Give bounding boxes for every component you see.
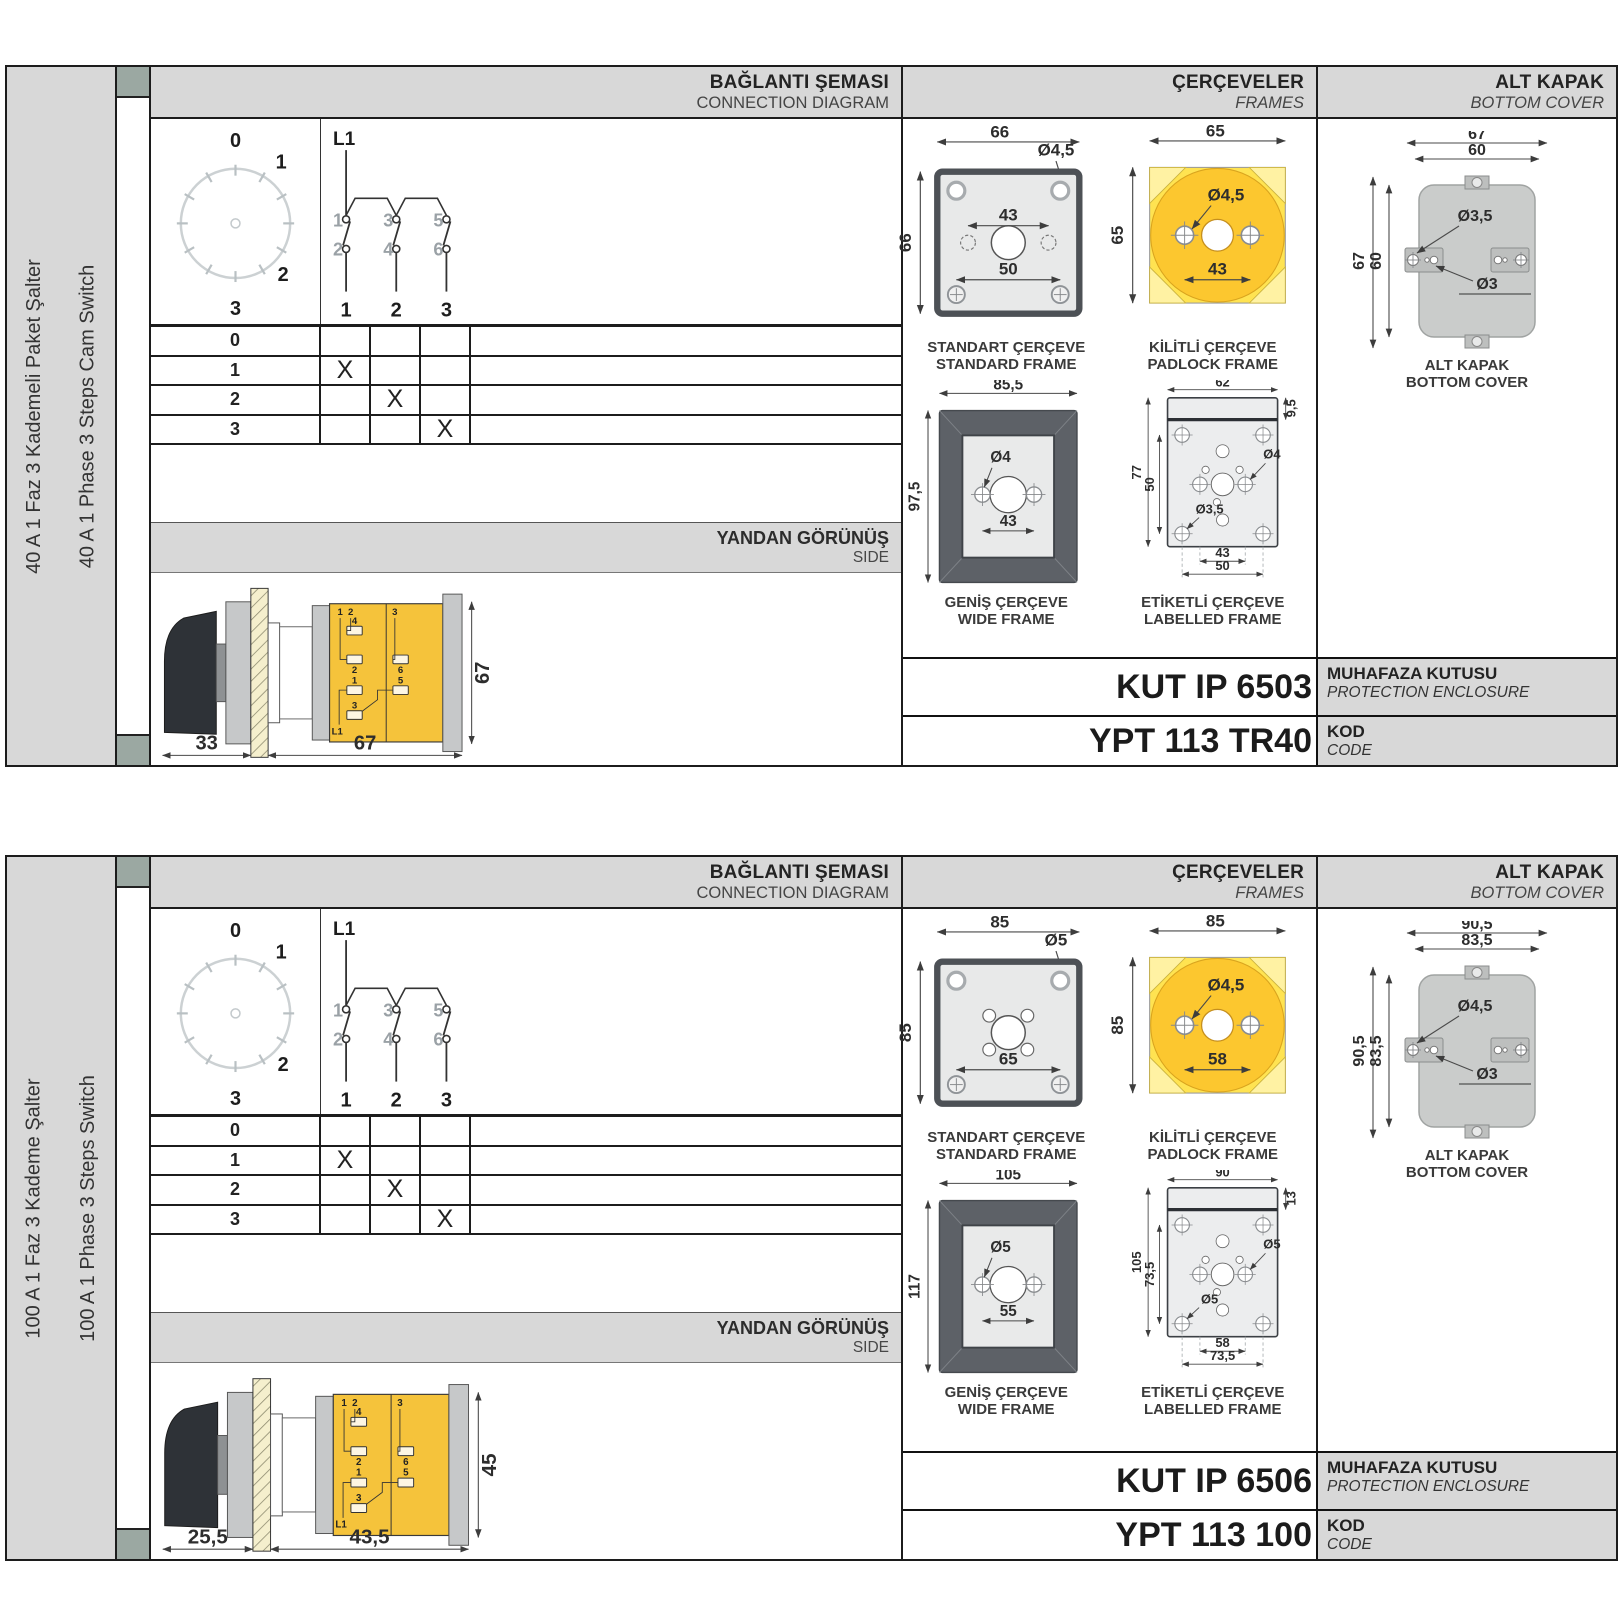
wire-label: 1: [337, 607, 343, 618]
contact-3: 3: [383, 1000, 393, 1020]
filler-cell: [471, 1117, 901, 1145]
contact-1: 1: [333, 210, 343, 230]
section-body: 0 1 2 3 L1: [151, 119, 1616, 765]
dim-hole-small: Ø5: [1201, 1291, 1218, 1306]
row-label: 1: [151, 357, 321, 385]
cover-caption-tr: ALT KAPAK: [1406, 357, 1528, 374]
output-3: 3: [441, 1090, 452, 1112]
dim-bottom: 65: [998, 1049, 1017, 1068]
frames-column: 66 Ø4,5 66: [903, 119, 1318, 657]
mark-cell: [371, 357, 421, 385]
terminal-label: 4: [352, 616, 358, 627]
column-headers: BAĞLANTI ŞEMASI CONNECTION DIAGRAM ÇERÇE…: [151, 67, 1616, 119]
side-view-svg: 1 2 3 4 2 1 3 6 5 L1 45: [151, 1363, 901, 1559]
product-name-tr-box: 100 A 1 Faz 3 Kademe Şalter: [7, 857, 61, 1559]
filler-cell: [471, 327, 901, 355]
dial-pos-0: 0: [230, 920, 241, 942]
dim-hole-big: Ø4: [1263, 446, 1281, 461]
mark-cell: [321, 1117, 371, 1145]
side-view-header: YANDAN GÖRÜNÜŞ SIDE: [151, 523, 901, 573]
contact-2: 2: [333, 239, 343, 259]
enclosure-row: KUT IP 6503 MUHAFAZA KUTUSU PROTECTION E…: [903, 657, 1616, 715]
connection-column: 0 1 2 3 L1: [151, 119, 903, 765]
enclosure-label-en: PROTECTION ENCLOSURE: [1327, 684, 1616, 703]
gutter-square-bottom: [117, 734, 149, 765]
mounting-collar: [226, 602, 251, 744]
diagram-row: 0 1 2 3 L1: [151, 119, 901, 327]
switch-table-row: 0: [151, 1117, 901, 1147]
output-lines: [346, 252, 446, 291]
dim-h1: 67: [1351, 252, 1368, 270]
bottom-cover-svg: 90,5 83,5 90,5 83,5: [1333, 921, 1601, 1145]
gutter-square-bottom: [117, 1528, 149, 1559]
frames-cover-area: 66 Ø4,5 66: [903, 119, 1616, 765]
dial-pos-3: 3: [230, 298, 241, 320]
code-label-tr: KOD: [1327, 722, 1616, 742]
frame-caption-en: PADLOCK FRAME: [1147, 1146, 1278, 1163]
labelled-frame-figure: 62 9,5 77 50: [1110, 374, 1317, 629]
product-code: YPT 113 100: [903, 1511, 1316, 1559]
dim-inner: 50: [1142, 477, 1157, 491]
contact-3: 3: [383, 210, 393, 230]
row-label: 0: [151, 1117, 321, 1145]
header-cover-en: BOTTOM COVER: [1470, 94, 1604, 113]
frame-caption-en: STANDARD FRAME: [927, 1146, 1085, 1163]
wire-label: 3: [392, 607, 397, 618]
dial-pos-3: 3: [230, 1088, 241, 1110]
dim-mid: 43: [998, 205, 1017, 224]
labelled-frame-svg: 90 13 105 73,5: [1119, 1170, 1307, 1382]
end-cap: [443, 594, 462, 751]
row-label: 3: [151, 416, 321, 444]
dim-width: 65: [1206, 125, 1225, 141]
dim-height: 65: [1108, 226, 1127, 245]
output-3: 3: [441, 300, 452, 322]
switch-table-row: 3X: [151, 416, 901, 446]
output-1: 1: [341, 300, 352, 322]
enclosure-label-tr: MUHAFAZA KUTUSU: [1327, 664, 1616, 684]
frame-caption-en: WIDE FRAME: [945, 1401, 1068, 1418]
dim-width: 105: [996, 1170, 1022, 1184]
code-label-tr: KOD: [1327, 1516, 1616, 1536]
bottom-cover-figure: 90,5 83,5 90,5 83,5: [1318, 915, 1616, 1182]
switch-table-row: 1X: [151, 357, 901, 387]
dial-pos-1: 1: [276, 942, 287, 964]
dim-height: 67: [472, 662, 494, 684]
dim-hole-2: Ø3: [1476, 1066, 1497, 1083]
dim-body: 43,5: [350, 1525, 390, 1548]
phase-wire-label: L1: [332, 726, 344, 737]
dim-body: 67: [354, 733, 376, 755]
header-connection-tr: BAĞLANTI ŞEMASI: [710, 862, 889, 884]
terminal-label: 4: [356, 1407, 362, 1418]
code-row: YPT 113 TR40 KOD CODE: [903, 715, 1616, 765]
dim-height: 117: [907, 1274, 923, 1299]
dim-bottom: 50: [998, 259, 1017, 278]
dim-width: 62: [1215, 380, 1229, 389]
cover-caption-tr: ALT KAPAK: [1406, 1147, 1528, 1164]
product-name-en-box: 100 A 1 Phase 3 Steps Switch: [61, 857, 115, 1559]
product-name-tr: 100 A 1 Faz 3 Kademe Şalter: [23, 1078, 46, 1338]
terminal-label: 5: [403, 1468, 409, 1479]
column-headers: BAĞLANTI ŞEMASI CONNECTION DIAGRAM ÇERÇE…: [151, 857, 1616, 909]
product-name-en: 100 A 1 Phase 3 Steps Switch: [77, 1075, 100, 1342]
header-connection-en: CONNECTION DIAGRAM: [696, 884, 889, 903]
filler-cell: [471, 357, 901, 385]
mark-cell: [421, 357, 471, 385]
output-2: 2: [391, 1090, 402, 1112]
header-frames-en: FRAMES: [1235, 94, 1304, 113]
header-cover-tr: ALT KAPAK: [1495, 862, 1604, 884]
header-connection-en: CONNECTION DIAGRAM: [696, 94, 889, 113]
mark-cell: [421, 1176, 471, 1204]
padlock-frame-figure: 85 85 Ø4,5: [1110, 909, 1317, 1164]
frame-caption-tr: KİLİTLİ ÇERÇEVE: [1147, 1129, 1278, 1146]
cover-caption-en: BOTTOM COVER: [1406, 374, 1528, 391]
front-housing: [282, 1418, 315, 1512]
dim-hole-1: Ø4,5: [1458, 998, 1493, 1015]
dial-drawing: 0 1 2 3: [151, 119, 320, 323]
product-name-tr-box: 40 A 1 Faz 3 Kademeli Paket Şalter: [7, 67, 61, 765]
standard-frame-figure: 66 Ø4,5 66: [903, 119, 1110, 374]
side-label-strip: 40 A 1 Faz 3 Kademeli Paket Şalter 40 A …: [7, 67, 117, 765]
side-view-header: YANDAN GÖRÜNÜŞ SIDE: [151, 1313, 901, 1363]
dim-bottom-2: 73,5: [1210, 1348, 1235, 1363]
section-main: BAĞLANTI ŞEMASI CONNECTION DIAGRAM ÇERÇE…: [151, 857, 1616, 1559]
mark-cell: X: [321, 1147, 371, 1175]
diagram-row: 0 1 2 3 L1: [151, 909, 901, 1117]
enclosure-row: KUT IP 6506 MUHAFAZA KUTUSU PROTECTION E…: [903, 1451, 1616, 1509]
terminal-label: 6: [398, 665, 403, 676]
bottom-cover-svg: 67 60 67 60: [1333, 131, 1601, 355]
code-label-en: CODE: [1327, 1536, 1616, 1555]
binding-gutter: [117, 67, 151, 765]
mark-cell: X: [371, 386, 421, 414]
phase-label: L1: [333, 129, 356, 150]
mark-cell: [421, 386, 471, 414]
switch-handle: [164, 611, 216, 734]
dim-height: 66: [897, 233, 915, 252]
mark-cell: X: [421, 416, 471, 444]
dim-height: 97,5: [907, 481, 923, 511]
header-frames-tr: ÇERÇEVELER: [1172, 862, 1304, 884]
terminal-label: 2: [356, 1457, 362, 1468]
phase-wire-label: L1: [335, 1520, 347, 1531]
output-lines: [346, 1042, 446, 1081]
dim-mid: 55: [1000, 1303, 1017, 1320]
code-row: YPT 113 100 KOD CODE: [903, 1509, 1616, 1559]
switch-position-dial: 0 1 2 3: [151, 119, 321, 324]
standard-frame-svg: 85 Ø5 85: [897, 915, 1116, 1127]
side-view-drawing: 1 2 3 4 2 1 3 6 5 L1 45: [151, 1363, 901, 1559]
header-cover-tr: ALT KAPAK: [1495, 72, 1604, 94]
mark-cell: [321, 1176, 371, 1204]
dim-hole-small: Ø3,5: [1195, 501, 1223, 516]
mark-cell: [321, 327, 371, 355]
frames-column: 85 Ø5 85: [903, 909, 1318, 1451]
section-body: 0 1 2 3 L1: [151, 909, 1616, 1559]
header-cover-en: BOTTOM COVER: [1470, 884, 1604, 903]
labelled-frame-svg: 62 9,5 77 50: [1119, 380, 1307, 592]
enclosure-label-en: PROTECTION ENCLOSURE: [1327, 1478, 1616, 1497]
contact-2: 2: [333, 1029, 343, 1049]
dim-width: 85,5: [994, 380, 1024, 394]
mounting-collar: [227, 1392, 252, 1537]
side-header-en: SIDE: [853, 549, 889, 567]
dim-width: 90: [1215, 1170, 1229, 1179]
product-name-en: 40 A 1 Phase 3 Steps Cam Switch: [77, 264, 100, 568]
wire-label: 1: [341, 1398, 347, 1409]
mark-cell: [421, 327, 471, 355]
contact-1: 1: [333, 1000, 343, 1020]
dim-hole-2: Ø3: [1476, 276, 1497, 293]
mark-cell: [321, 386, 371, 414]
product-section-40a: 40 A 1 Faz 3 Kademeli Paket Şalter 40 A …: [5, 65, 1618, 767]
gutter-square-top: [117, 67, 149, 98]
contact-6: 6: [433, 1029, 443, 1049]
switch-handle: [165, 1402, 218, 1527]
mark-cell: [371, 1117, 421, 1145]
terminal-label: 2: [352, 665, 357, 676]
front-housing: [280, 627, 313, 719]
dim-hole: Ø4: [991, 449, 1012, 466]
header-connection-tr: BAĞLANTI ŞEMASI: [710, 72, 889, 94]
frame-caption-tr: GENİŞ ÇERÇEVE: [945, 1384, 1068, 1401]
panel-hatch: [253, 1379, 271, 1551]
dim-height: 85: [897, 1023, 915, 1042]
dim-hole: Ø5: [1044, 931, 1067, 950]
dim-hole: Ø4,5: [1208, 185, 1245, 204]
header-connection-diagram: BAĞLANTI ŞEMASI CONNECTION DIAGRAM: [151, 857, 903, 907]
spacer-row: [151, 445, 901, 523]
mark-cell: [371, 327, 421, 355]
frames-cover-area: 85 Ø5 85: [903, 909, 1616, 1559]
dim-mid: 43: [1208, 259, 1227, 278]
frame-caption-en: WIDE FRAME: [945, 611, 1068, 628]
mark-cell: [371, 1147, 421, 1175]
filler-cell: [471, 1147, 901, 1175]
circuit-drawing: L1: [321, 909, 901, 1115]
wide-frame-figure: 105 117 Ø5: [903, 1164, 1110, 1419]
circuit-drawing: L1: [321, 119, 901, 325]
row-label: 3: [151, 1206, 321, 1234]
mark-cell: [421, 1147, 471, 1175]
connection-circuit: L1: [321, 909, 901, 1114]
mark-cell: [321, 1206, 371, 1234]
cover-column: 90,5 83,5 90,5 83,5: [1318, 909, 1616, 1451]
enclosure-code: KUT IP 6503: [903, 659, 1316, 715]
mark-cell: X: [371, 1176, 421, 1204]
mark-cell: [421, 1117, 471, 1145]
enclosure-label: MUHAFAZA KUTUSU PROTECTION ENCLOSURE: [1316, 1453, 1616, 1509]
mark-cell: [371, 1206, 421, 1234]
phase-label: L1: [333, 919, 356, 940]
terminal-label: 3: [352, 700, 357, 711]
panel-hatch: [251, 588, 268, 757]
header-bottom-cover: ALT KAPAK BOTTOM COVER: [1318, 857, 1616, 907]
dim-width: 66: [990, 125, 1009, 142]
row-label: 1: [151, 1147, 321, 1175]
dim-w2: 60: [1468, 142, 1486, 159]
switch-table-row: 2X: [151, 1176, 901, 1206]
contact-5: 5: [433, 210, 443, 230]
standard-frame-svg: 66 Ø4,5 66: [897, 125, 1116, 337]
wide-frame-svg: 85,5 97,5 Ø4: [907, 380, 1105, 592]
header-frames: ÇERÇEVELER FRAMES: [903, 857, 1318, 907]
header-frames: ÇERÇEVELER FRAMES: [903, 67, 1318, 117]
standard-frame-figure: 85 Ø5 85: [903, 909, 1110, 1164]
side-header-tr: YANDAN GÖRÜNÜŞ: [717, 528, 889, 549]
switch-table-row: 3X: [151, 1206, 901, 1236]
frame-caption-tr: STANDART ÇERÇEVE: [927, 1129, 1085, 1146]
padlock-frame-svg: 65 65 Ø4,5: [1103, 125, 1322, 337]
wire-label: 3: [397, 1398, 403, 1409]
filler-cell: [471, 1206, 901, 1234]
labelled-frame-figure: 90 13 105 73,5: [1110, 1164, 1317, 1419]
frame-caption-en: LABELLED FRAME: [1141, 611, 1284, 628]
product-name-tr: 40 A 1 Faz 3 Kademeli Paket Şalter: [23, 259, 46, 574]
output-1: 1: [341, 1090, 352, 1112]
frame-caption-en: PADLOCK FRAME: [1147, 356, 1278, 373]
wide-frame-svg: 105 117 Ø5: [907, 1170, 1105, 1382]
switch-position-dial: 0 1 2 3: [151, 909, 321, 1114]
dim-width: 85: [1206, 915, 1225, 931]
side-header-tr: YANDAN GÖRÜNÜŞ: [717, 1318, 889, 1339]
dial-drawing: 0 1 2 3: [151, 909, 320, 1113]
dim-height: 45: [478, 1453, 501, 1476]
terminal-label: 5: [398, 675, 404, 686]
enclosure-code: KUT IP 6506: [903, 1453, 1316, 1509]
spacer-row: [151, 1235, 901, 1313]
frame-caption-en: STANDARD FRAME: [927, 356, 1085, 373]
cover-caption-en: BOTTOM COVER: [1406, 1164, 1528, 1181]
bottom-cover-figure: 67 60 67 60: [1318, 125, 1616, 392]
filler-cell: [471, 416, 901, 444]
contact-6: 6: [433, 239, 443, 259]
dim-bottom-2: 50: [1215, 558, 1229, 573]
frame-caption-tr: GENİŞ ÇERÇEVE: [945, 594, 1068, 611]
product-section-100a: 100 A 1 Faz 3 Kademe Şalter 100 A 1 Phas…: [5, 855, 1618, 1561]
dim-hole-1: Ø3,5: [1458, 208, 1493, 225]
dial-pos-1: 1: [276, 152, 287, 174]
binding-gutter: [117, 857, 151, 1559]
connection-column: 0 1 2 3 L1: [151, 909, 903, 1559]
section-main: BAĞLANTI ŞEMASI CONNECTION DIAGRAM ÇERÇE…: [151, 67, 1616, 765]
connection-circuit: L1: [321, 119, 901, 324]
frame-caption-tr: ETİKETLİ ÇERÇEVE: [1141, 1384, 1284, 1401]
gutter-square-top: [117, 857, 149, 888]
frame-caption-en: LABELLED FRAME: [1141, 1401, 1284, 1418]
output-2: 2: [391, 300, 402, 322]
dim-h2: 83,5: [1368, 1035, 1385, 1066]
row-label: 2: [151, 1176, 321, 1204]
dim-height: 85: [1108, 1016, 1127, 1035]
switch-table-row: 2X: [151, 386, 901, 416]
header-bottom-cover: ALT KAPAK BOTTOM COVER: [1318, 67, 1616, 117]
dim-width: 85: [990, 915, 1009, 932]
side-header-en: SIDE: [853, 1339, 889, 1357]
contact-5: 5: [433, 1000, 443, 1020]
filler-cell: [471, 386, 901, 414]
terminal-label: 1: [356, 1468, 362, 1479]
dim-h1: 90,5: [1351, 1035, 1368, 1066]
switch-table-row: 0: [151, 327, 901, 357]
dial-pos-2: 2: [278, 1054, 289, 1076]
cover-column: 67 60 67 60: [1318, 119, 1616, 657]
frame-caption-tr: KİLİTLİ ÇERÇEVE: [1147, 339, 1278, 356]
padlock-frame-figure: 65 65 Ø4,5: [1110, 119, 1317, 374]
header-frames-tr: ÇERÇEVELER: [1172, 72, 1304, 94]
filler-cell: [471, 1176, 901, 1204]
side-view-svg: 1 2 3 4 2 1 3 6 5 L1 67: [151, 573, 901, 765]
dim-hole: Ø4,5: [1208, 975, 1245, 994]
row-label: 0: [151, 327, 321, 355]
product-code: YPT 113 TR40: [903, 717, 1316, 765]
dim-hole: Ø4,5: [1037, 141, 1074, 160]
terminal-label: 6: [403, 1457, 409, 1468]
contact-4: 4: [383, 1029, 393, 1049]
mark-cell: X: [321, 357, 371, 385]
end-cap: [449, 1385, 469, 1546]
dim-handle: 25,5: [188, 1525, 228, 1548]
switch-table-row: 1X: [151, 1147, 901, 1177]
dim-strip: 13: [1283, 1191, 1298, 1205]
code-label-en: CODE: [1327, 742, 1616, 761]
code-label: KOD CODE: [1316, 1511, 1616, 1559]
side-label-strip: 100 A 1 Faz 3 Kademe Şalter 100 A 1 Phas…: [7, 857, 117, 1559]
dial-pos-0: 0: [230, 130, 241, 152]
padlock-frame-svg: 85 85 Ø4,5: [1103, 915, 1322, 1127]
dim-hole: Ø5: [991, 1239, 1012, 1256]
row-label: 2: [151, 386, 321, 414]
dim-strip: 9,5: [1283, 399, 1298, 417]
enclosure-label: MUHAFAZA KUTUSU PROTECTION ENCLOSURE: [1316, 659, 1616, 715]
side-view-drawing: 1 2 3 4 2 1 3 6 5 L1 67: [151, 573, 901, 765]
dim-handle: 33: [195, 733, 217, 755]
product-name-en-box: 40 A 1 Phase 3 Steps Cam Switch: [61, 67, 115, 765]
wide-frame-figure: 85,5 97,5 Ø4: [903, 374, 1110, 629]
enclosure-label-tr: MUHAFAZA KUTUSU: [1327, 1458, 1616, 1478]
terminal-label: 1: [352, 675, 358, 686]
frame-caption-tr: STANDART ÇERÇEVE: [927, 339, 1085, 356]
header-connection-diagram: BAĞLANTI ŞEMASI CONNECTION DIAGRAM: [151, 67, 903, 117]
contact-4: 4: [383, 239, 393, 259]
dim-mid: 58: [1208, 1049, 1227, 1068]
mark-cell: [321, 416, 371, 444]
mark-cell: X: [421, 1206, 471, 1234]
mark-cell: [371, 416, 421, 444]
dim-h2: 60: [1368, 252, 1385, 270]
dim-w2: 83,5: [1461, 932, 1492, 949]
header-frames-en: FRAMES: [1235, 884, 1304, 903]
terminal-label: 3: [356, 1493, 362, 1504]
dim-mid: 43: [1000, 513, 1017, 530]
frame-caption-tr: ETİKETLİ ÇERÇEVE: [1141, 594, 1284, 611]
catalog-page: 40 A 1 Faz 3 Kademeli Paket Şalter 40 A …: [0, 0, 1623, 1623]
dim-hole-big: Ø5: [1263, 1236, 1280, 1251]
dim-inner: 73,5: [1142, 1261, 1157, 1286]
dial-pos-2: 2: [278, 264, 289, 286]
code-label: KOD CODE: [1316, 717, 1616, 765]
